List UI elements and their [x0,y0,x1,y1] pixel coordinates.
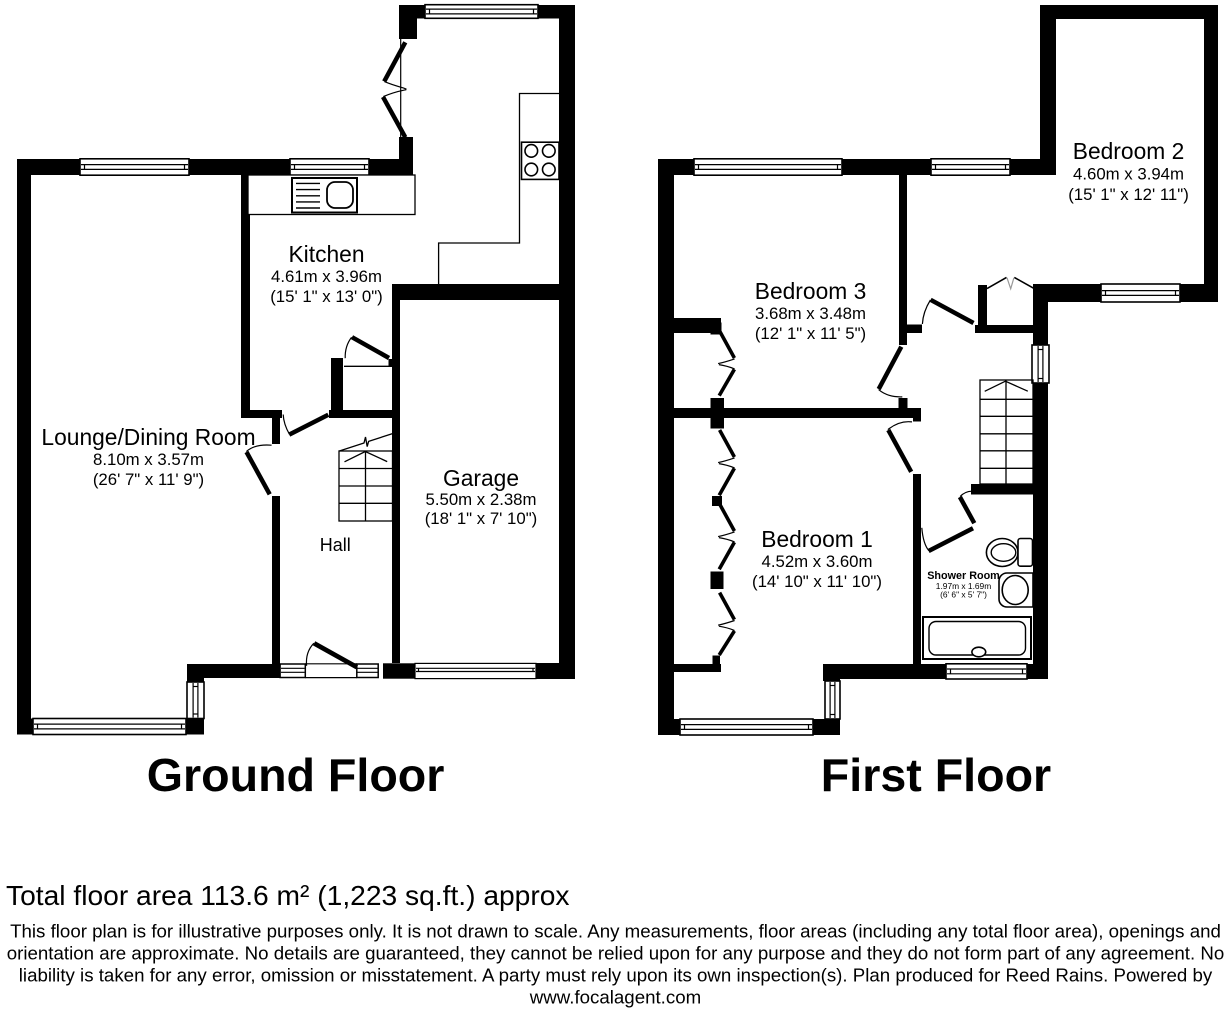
svg-text:(18' 1" x 7' 10"): (18' 1" x 7' 10") [425,509,538,528]
svg-text:(15' 1" x 12' 11"): (15' 1" x 12' 11") [1068,185,1189,204]
svg-text:First Floor: First Floor [821,749,1051,801]
svg-text:Kitchen: Kitchen [288,241,364,267]
svg-text:4.61m x 3.96m: 4.61m x 3.96m [271,267,382,286]
svg-text:www.focalagent.com: www.focalagent.com [529,987,701,1008]
svg-text:(14' 10" x 11' 10"): (14' 10" x 11' 10") [752,572,882,591]
svg-text:8.10m x 3.57m: 8.10m x 3.57m [93,450,204,469]
svg-text:Bedroom 3: Bedroom 3 [755,278,867,304]
svg-text:orientation are approximate. N: orientation are approximate. No details … [7,942,1225,963]
svg-text:Bedroom 1: Bedroom 1 [761,526,873,552]
svg-text:Ground Floor: Ground Floor [147,749,445,801]
svg-text:Total floor area 113.6 m² (1,2: Total floor area 113.6 m² (1,223 sq.ft.)… [6,879,570,911]
svg-text:(6' 6" x 5' 7"): (6' 6" x 5' 7") [940,590,987,600]
svg-text:(12' 1" x 11' 5"): (12' 1" x 11' 5") [755,324,866,343]
svg-text:Lounge/Dining Room: Lounge/Dining Room [41,424,255,450]
svg-text:4.60m x 3.94m: 4.60m x 3.94m [1073,165,1184,184]
svg-text:(26' 7" x 11' 9"): (26' 7" x 11' 9") [93,470,204,489]
svg-text:liability is taken for any err: liability is taken for any error, omissi… [19,965,1213,986]
svg-text:Garage: Garage [443,465,519,491]
svg-text:4.52m x 3.60m: 4.52m x 3.60m [762,552,873,571]
svg-text:3.68m x 3.48m: 3.68m x 3.48m [755,304,866,323]
svg-text:(15' 1" x 13' 0"): (15' 1" x 13' 0") [270,287,383,306]
svg-text:This floor plan is for illustr: This floor plan is for illustrative purp… [10,921,1221,942]
svg-text:Hall: Hall [320,535,351,555]
svg-text:Bedroom 2: Bedroom 2 [1073,138,1185,164]
svg-text:5.50m x 2.38m: 5.50m x 2.38m [426,490,537,509]
